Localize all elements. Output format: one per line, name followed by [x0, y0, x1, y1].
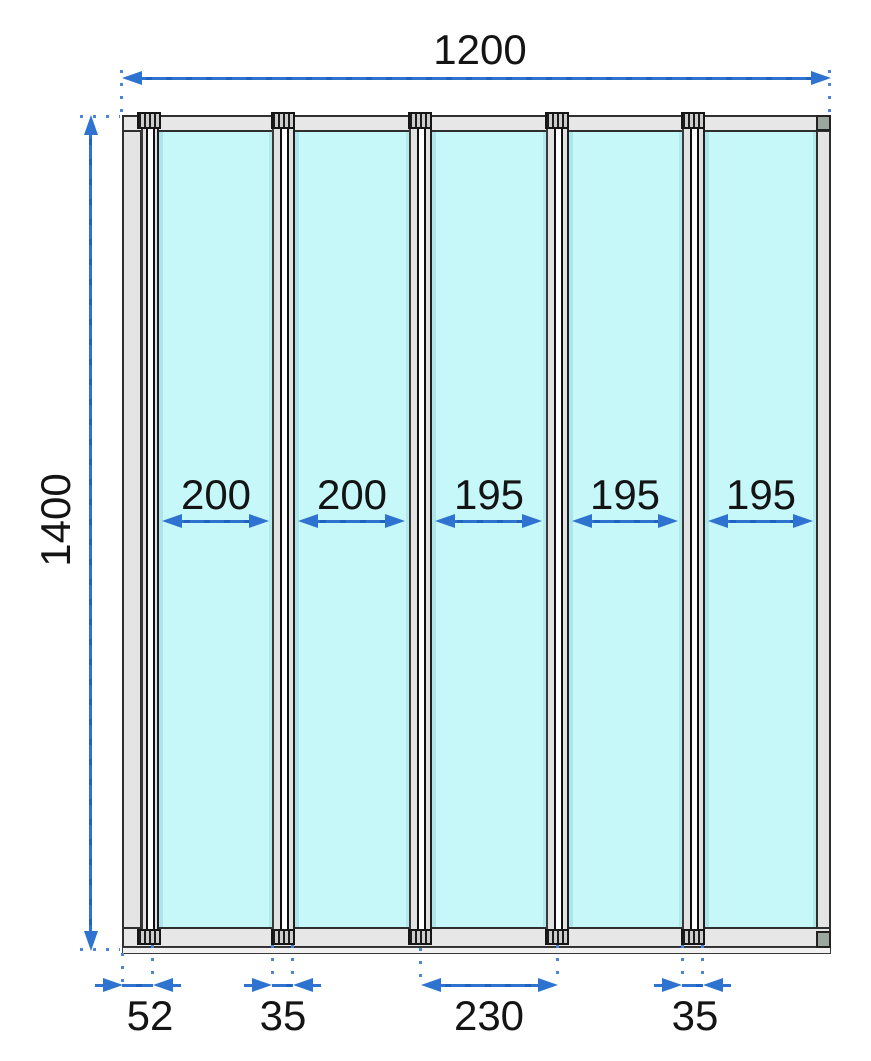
top-hinge-bracket-3 — [408, 112, 432, 129]
arrowhead-left-icon — [421, 978, 441, 992]
hinge-joint-line — [280, 128, 289, 929]
extension-line — [80, 115, 120, 118]
fold-hinge-mullion-2 — [409, 128, 432, 929]
glass-panel-3 — [432, 130, 546, 927]
tail-line — [312, 984, 321, 987]
arrowhead-left-icon — [703, 978, 723, 992]
arrowhead-left-icon — [293, 978, 313, 992]
arrowhead-right-icon — [793, 514, 813, 528]
extension-line — [419, 948, 422, 978]
dim-overall-width-line — [132, 77, 821, 80]
dim-panel-4-label: 195 — [590, 474, 660, 516]
hinge-joint-line — [146, 128, 155, 929]
glass-panel-4 — [569, 130, 682, 927]
extension-line — [80, 948, 120, 951]
tail-line — [722, 984, 731, 987]
fold-hinge-mullion-1 — [272, 128, 295, 929]
arrowhead-left-icon — [298, 514, 318, 528]
bottom-right-corner-block — [816, 931, 831, 948]
arrowhead-left-icon — [162, 514, 182, 528]
dim-overall-width-label: 1200 — [433, 29, 526, 71]
arrowhead-left-icon — [122, 71, 142, 85]
arrowhead-right-icon — [522, 514, 542, 528]
dim-35b-line — [682, 984, 703, 987]
top-hinge-bracket-1 — [137, 112, 161, 129]
bottom-hinge-bracket-3 — [408, 929, 432, 945]
top-hinge-bracket-5 — [681, 112, 705, 129]
left-wall-profile — [122, 115, 142, 953]
arrowhead-right-icon — [662, 978, 682, 992]
arrowhead-right-icon — [538, 978, 558, 992]
bottom-hinge-bracket-4 — [545, 929, 569, 945]
right-end-profile — [816, 115, 831, 953]
extension-line — [120, 70, 123, 114]
dim-overall-height-label: 1400 — [35, 473, 77, 566]
arrowhead-left-icon — [708, 514, 728, 528]
dim-230-label: 230 — [454, 995, 524, 1037]
arrowhead-right-icon — [252, 978, 272, 992]
top-hinge-bracket-4 — [545, 112, 569, 129]
left-fold-hinge — [141, 128, 159, 929]
extension-line — [828, 70, 831, 114]
top-right-corner-block — [816, 115, 831, 131]
tail-line — [654, 984, 663, 987]
arrowhead-right-icon — [385, 514, 405, 528]
hinge-joint-line — [417, 128, 426, 929]
glass-panel-1 — [159, 130, 272, 927]
frame-bottom-threshold — [122, 947, 831, 954]
dim-35a-label: 35 — [260, 995, 307, 1037]
extension-line — [556, 945, 559, 978]
bottom-hinge-bracket-5 — [681, 929, 705, 945]
arrowhead-left-icon — [153, 978, 173, 992]
technical-drawing: 1200 1400 200 200 195 195 — [0, 0, 871, 1061]
arrowhead-left-icon — [435, 514, 455, 528]
hinge-joint-line — [690, 128, 699, 929]
extension-line — [701, 945, 704, 981]
dim-panel-3-label: 195 — [454, 474, 524, 516]
glass-panel-5 — [705, 130, 816, 927]
dim-panel-2-label: 200 — [317, 474, 387, 516]
dim-35b-label: 35 — [672, 995, 719, 1037]
dim-35a-line — [272, 984, 293, 987]
fold-hinge-mullion-3 — [546, 128, 569, 929]
extension-line — [291, 945, 294, 981]
arrowhead-right-icon — [249, 514, 269, 528]
dim-52-label: 52 — [127, 995, 174, 1037]
hinge-joint-line — [554, 128, 563, 929]
dim-panel-5-label: 195 — [726, 474, 796, 516]
frame-top-rail — [122, 115, 831, 132]
arrowhead-right-icon — [103, 978, 123, 992]
arrowhead-right-icon — [658, 514, 678, 528]
extension-line — [271, 945, 274, 981]
top-hinge-bracket-2 — [271, 112, 295, 129]
bottom-hinge-bracket-1 — [137, 929, 161, 945]
dim-panel-1-label: 200 — [181, 474, 251, 516]
dim-230-line — [431, 984, 548, 987]
extension-line — [681, 945, 684, 981]
dim-overall-height-line — [89, 125, 92, 942]
bottom-hinge-bracket-2 — [271, 929, 295, 945]
frame-bottom-rail — [122, 927, 831, 948]
glass-panel-2 — [295, 130, 409, 927]
dim-52-line — [122, 984, 153, 987]
fold-hinge-mullion-4 — [682, 128, 705, 929]
tail-line — [95, 984, 104, 987]
arrowhead-up-icon — [84, 115, 98, 135]
tail-line — [172, 984, 181, 987]
tail-line — [244, 984, 253, 987]
arrowhead-left-icon — [572, 514, 592, 528]
